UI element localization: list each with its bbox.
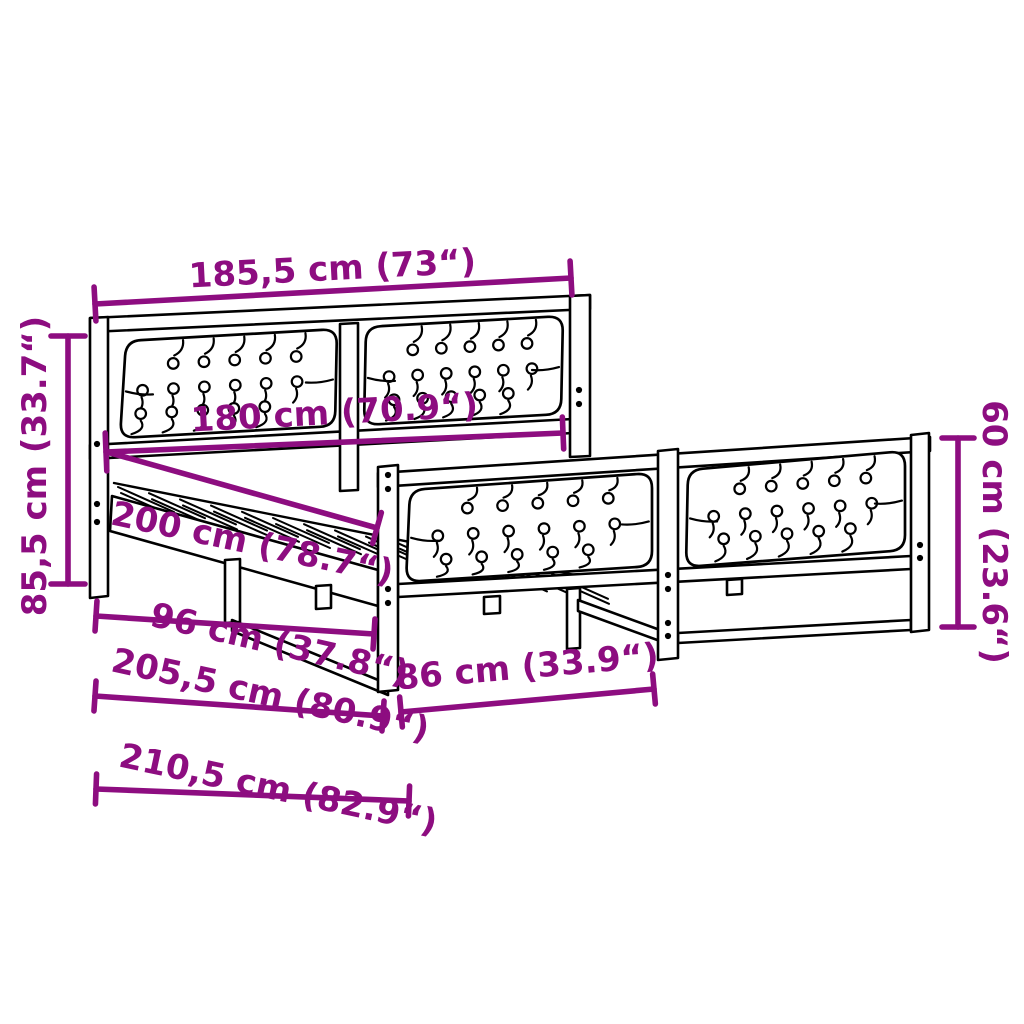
screw-dot xyxy=(576,401,582,407)
tuft-button xyxy=(718,534,729,545)
footboard-beam xyxy=(678,620,911,643)
screw-dot xyxy=(94,441,100,447)
tuft-button xyxy=(568,495,579,506)
screw-dot xyxy=(917,555,923,561)
tuft-button xyxy=(199,356,210,367)
tuft-button xyxy=(609,519,620,530)
tuft-button xyxy=(261,378,272,389)
tuft-button xyxy=(135,408,146,419)
tuft-button xyxy=(813,526,824,537)
dim-label-footboard-section-width: 86 cm (33.9“) xyxy=(394,636,660,699)
dim-label-headboard-height: 85,5 cm (33.7“) xyxy=(15,316,55,616)
screw-dot xyxy=(665,633,671,639)
tuft-button xyxy=(498,365,509,376)
dim-headboard-height xyxy=(51,336,85,584)
tuft-button xyxy=(522,338,533,349)
tuft-button xyxy=(407,345,418,356)
tuft-button xyxy=(465,341,476,352)
dim-label-footboard-height: 60 cm (23.6“) xyxy=(974,400,1014,664)
screw-dot xyxy=(385,486,391,492)
screw-dot xyxy=(94,519,100,525)
dim-footboard-height xyxy=(942,438,974,627)
tuft-button xyxy=(829,475,840,486)
tuft-button xyxy=(835,501,846,512)
screw-dot xyxy=(576,387,582,393)
tuft-button xyxy=(603,493,614,504)
screw-dot xyxy=(665,586,671,592)
tuft-button xyxy=(708,511,719,522)
screw-dot xyxy=(665,620,671,626)
tuft-button xyxy=(441,554,452,565)
tuft-button xyxy=(750,531,761,542)
tuft-button xyxy=(166,407,177,418)
rail-bracket xyxy=(727,579,742,595)
tuft-button xyxy=(527,363,538,374)
tuft-button xyxy=(583,544,594,555)
tuft-button xyxy=(547,547,558,558)
tuft-button xyxy=(291,351,302,362)
tuft-button xyxy=(845,523,856,534)
screw-dot xyxy=(385,472,391,478)
tuft-button xyxy=(229,355,240,366)
tuft-button xyxy=(199,382,210,393)
tuft-button xyxy=(168,383,179,394)
dimension-stroke xyxy=(570,261,572,295)
footboard-beam xyxy=(578,600,660,641)
dimension-stroke xyxy=(95,601,97,631)
tuft-button xyxy=(503,526,514,537)
dimension-stroke xyxy=(95,774,96,804)
screw-dot xyxy=(665,572,671,578)
tuft-button xyxy=(772,506,783,517)
support-leg xyxy=(316,585,331,609)
headboard-post-right xyxy=(570,295,590,457)
tuft-button xyxy=(441,368,452,379)
rail-bracket xyxy=(484,596,500,614)
tuft-button xyxy=(497,500,508,511)
tuft-button xyxy=(539,523,550,534)
dimension-stroke xyxy=(94,681,96,711)
screw-dot xyxy=(94,501,100,507)
dimension-stroke xyxy=(562,417,563,449)
dimension-stroke xyxy=(94,287,96,321)
tuft-button xyxy=(292,376,303,387)
tuft-button xyxy=(436,343,447,354)
footboard-cushion-left xyxy=(407,474,652,581)
footboard-support-leg xyxy=(567,588,580,649)
footboard-post-center xyxy=(658,449,678,660)
tuft-button xyxy=(766,481,777,492)
tuft-button xyxy=(462,503,473,514)
tuft-button xyxy=(168,358,179,369)
screw-dot xyxy=(385,600,391,606)
tuft-button xyxy=(734,484,745,495)
diagram-canvas: 185,5 cm (73“) 85,5 cm (33.7“) 180 cm (7… xyxy=(0,0,1024,1024)
tuft-button xyxy=(574,521,585,532)
bed-frame-dimension-diagram: 185,5 cm (73“) 85,5 cm (33.7“) 180 cm (7… xyxy=(0,0,1024,1024)
tuft-button xyxy=(803,503,814,514)
tuft-button xyxy=(230,380,241,391)
screw-dot xyxy=(917,542,923,548)
tuft-button xyxy=(433,531,444,542)
tuft-button xyxy=(468,528,479,539)
tuft-button xyxy=(412,370,423,381)
footboard-cushion-right xyxy=(686,452,905,566)
tuft-button xyxy=(260,353,271,364)
tuft-button xyxy=(740,508,751,519)
tuft-button xyxy=(476,552,487,563)
tuft-button xyxy=(512,549,523,560)
tuft-button xyxy=(782,528,793,539)
tuft-button xyxy=(493,340,504,351)
dimension-stroke xyxy=(653,674,656,704)
tuft-button xyxy=(469,367,480,378)
tuft-button xyxy=(503,388,514,399)
tuft-button xyxy=(861,473,872,484)
tuft-button xyxy=(797,478,808,489)
footboard-post-right xyxy=(911,433,929,632)
tuft-button xyxy=(533,498,544,509)
